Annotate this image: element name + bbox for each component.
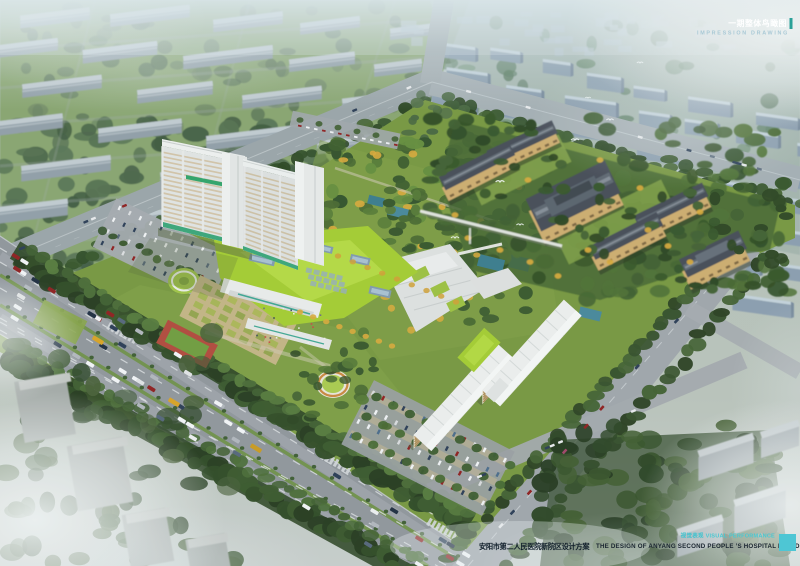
svg-text:IMPRESSION DRAWING: IMPRESSION DRAWING (697, 31, 789, 37)
svg-text:一期整体鸟瞰图: 一期整体鸟瞰图 (728, 18, 787, 28)
svg-text:视觉表现 VISUAL PERFORMANCE: 视觉表现 VISUAL PERFORMANCE (681, 532, 775, 540)
svg-text:安阳市第二人民医院新院区设计方案: 安阳市第二人民医院新院区设计方案 (479, 542, 590, 551)
svg-text:THE DESIGN OF ANYANG SECOND PE: THE DESIGN OF ANYANG SECOND PEOPLE ’S HO… (596, 543, 800, 550)
